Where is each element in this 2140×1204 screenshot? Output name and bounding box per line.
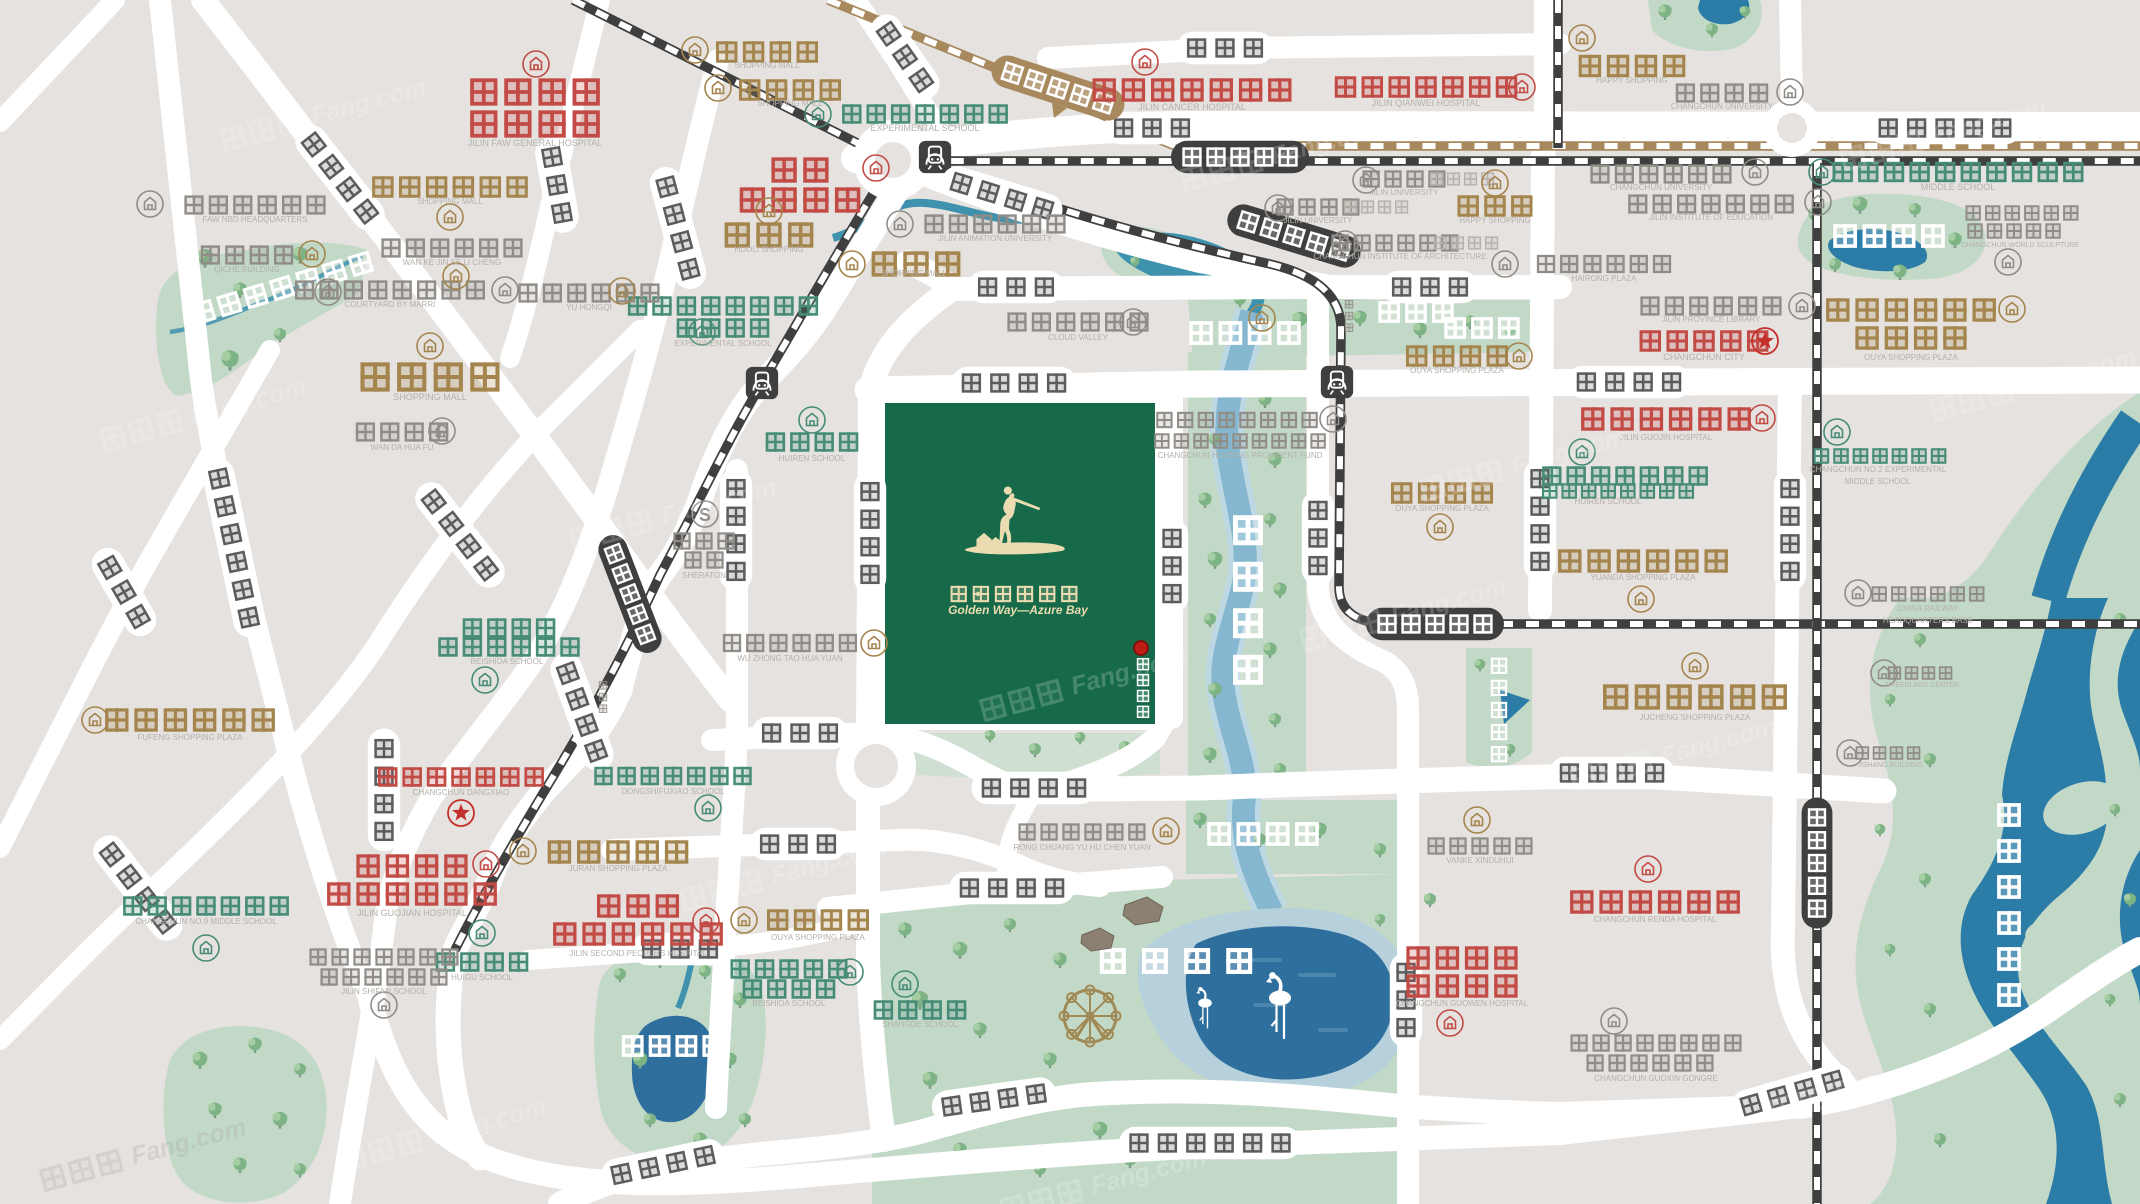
svg-text:SHOPPING MALL: SHOPPING MALL bbox=[417, 197, 483, 206]
svg-text:CHANGCHUN NO.9 MIDDLE SCHOOL: CHANGCHUN NO.9 MIDDLE SCHOOL bbox=[135, 917, 277, 926]
svg-text:JISHANG BUILDING: JISHANG BUILDING bbox=[1857, 762, 1922, 769]
svg-text:JILIN ANIMATION UNIVERSITY: JILIN ANIMATION UNIVERSITY bbox=[938, 234, 1053, 243]
svg-text:CHANGCHUN UNIVERSITY: CHANGCHUN UNIVERSITY bbox=[1671, 102, 1774, 111]
svg-text:JILIN UNIVERSITY: JILIN UNIVERSITY bbox=[1370, 188, 1440, 197]
svg-text:SHOPPING MALL: SHOPPING MALL bbox=[734, 61, 800, 70]
svg-text:JILIN SECOND PEOPLE'S HOSPITAL: JILIN SECOND PEOPLE'S HOSPITAL bbox=[569, 949, 707, 958]
svg-text:HEADQUARTERS BASE: HEADQUARTERS BASE bbox=[1883, 616, 1973, 625]
svg-text:OUYA SHOPPING PLAZA: OUYA SHOPPING PLAZA bbox=[1410, 366, 1504, 375]
svg-text:MIDDLE SCHOOL: MIDDLE SCHOOL bbox=[1845, 477, 1912, 486]
svg-text:Golden Way—Azure Bay: Golden Way—Azure Bay bbox=[948, 603, 1089, 617]
svg-text:VANKE XINDUHUI: VANKE XINDUHUI bbox=[1446, 856, 1513, 865]
svg-text:JILIN SHIFAN SCHOOL: JILIN SHIFAN SCHOOL bbox=[341, 987, 427, 996]
svg-text:CHANGCHUN RENDA HOSPITAL: CHANGCHUN RENDA HOSPITAL bbox=[1594, 915, 1718, 924]
svg-text:CHANGCHUN UNIVERSITY: CHANGCHUN UNIVERSITY bbox=[1610, 183, 1713, 192]
svg-text:JURAN SHOPPING PLAZA: JURAN SHOPPING PLAZA bbox=[569, 864, 668, 873]
svg-text:COURTYARD BY MARRI: COURTYARD BY MARRI bbox=[345, 300, 436, 309]
svg-text:JILIN INSTITUTE OF EDUCATION: JILIN INSTITUTE OF EDUCATION bbox=[1649, 213, 1774, 222]
svg-text:MIDDLE SCHOOL: MIDDLE SCHOOL bbox=[1921, 182, 1996, 192]
svg-text:OUYA SHOPPING PLAZA: OUYA SHOPPING PLAZA bbox=[1864, 353, 1958, 362]
svg-text:HUIREN SCHOOL: HUIREN SCHOOL bbox=[779, 454, 846, 463]
svg-text:CHINA RAILWAY: CHINA RAILWAY bbox=[1897, 604, 1959, 613]
svg-text:WAN KE JIN SE LI CHENG: WAN KE JIN SE LI CHENG bbox=[403, 258, 501, 267]
svg-text:HAPPY SHOPPING: HAPPY SHOPPING bbox=[1459, 216, 1530, 225]
svg-text:OUYA SHOPPING PLAZA: OUYA SHOPPING PLAZA bbox=[1395, 504, 1489, 513]
svg-text:CHANGCHUN GUOXIN GONGRE: CHANGCHUN GUOXIN GONGRE bbox=[1594, 1074, 1718, 1083]
svg-text:SHOPPING MALL: SHOPPING MALL bbox=[757, 99, 823, 108]
svg-text:JILIN CANCER HOSPITAL: JILIN CANCER HOSPITAL bbox=[1138, 102, 1246, 112]
svg-text:BEISHIDA SCHOOL: BEISHIDA SCHOOL bbox=[753, 999, 826, 1008]
svg-text:JUCHENG SHOPPING PLAZA: JUCHENG SHOPPING PLAZA bbox=[1640, 713, 1751, 722]
svg-text:SHANGDE SCHOOL: SHANGDE SCHOOL bbox=[882, 1020, 958, 1029]
svg-text:CHANGCHUN DANGXIAO: CHANGCHUN DANGXIAO bbox=[413, 788, 509, 797]
svg-text:CHANGCHUN CITY: CHANGCHUN CITY bbox=[1663, 352, 1745, 362]
svg-text:JILIN UNIVERSITY: JILIN UNIVERSITY bbox=[1284, 216, 1354, 225]
svg-text:EXPERIMENTAL SCHOOL: EXPERIMENTAL SCHOOL bbox=[870, 123, 979, 133]
svg-text:FAW NBD HEADQUARTERS: FAW NBD HEADQUARTERS bbox=[203, 215, 308, 224]
svg-text:DONGSHIFUXIAO SCHOOL: DONGSHIFUXIAO SCHOOL bbox=[621, 787, 725, 796]
svg-text:CHANGCHUN WORLD SCULPTURE: CHANGCHUN WORLD SCULPTURE bbox=[1961, 242, 2079, 249]
svg-text:HUIGU SCHOOL: HUIGU SCHOOL bbox=[451, 973, 513, 982]
svg-text:BEISHIDA SCHOOL: BEISHIDA SCHOOL bbox=[471, 657, 544, 666]
svg-text:CHANGCHUN HOUSING PROVIDENT FU: CHANGCHUN HOUSING PROVIDENT FUND bbox=[1158, 451, 1323, 460]
svg-text:SHERATON: SHERATON bbox=[682, 571, 726, 580]
svg-text:HUOLI SHOPPING: HUOLI SHOPPING bbox=[735, 245, 804, 254]
svg-text:JILIN GUOJIN HOSPITAL: JILIN GUOJIN HOSPITAL bbox=[1620, 433, 1713, 442]
svg-text:JILIN PROVINCE LIBRARY: JILIN PROVINCE LIBRARY bbox=[1662, 315, 1762, 324]
svg-text:HAPPY SHOPPING: HAPPY SHOPPING bbox=[1596, 76, 1667, 85]
svg-text:CLOUD VALLEY: CLOUD VALLEY bbox=[1048, 333, 1109, 342]
svg-text:CHANGCHUN GUOWEN HOSPITAL: CHANGCHUN GUOWEN HOSPITAL bbox=[1396, 999, 1529, 1008]
svg-text:FUFENG SHOPPING PLAZA: FUFENG SHOPPING PLAZA bbox=[138, 733, 244, 742]
svg-text:HAIRONG PLAZA: HAIRONG PLAZA bbox=[1572, 274, 1638, 283]
svg-text:GREENLAND CENTER: GREENLAND CENTER bbox=[1885, 682, 1959, 689]
svg-text:EXPERIMENTAL SCHOOL: EXPERIMENTAL SCHOOL bbox=[675, 339, 772, 348]
svg-text:CHANGCHUN INSTITUTE OF ARCHITE: CHANGCHUN INSTITUTE OF ARCHITECTURE bbox=[1313, 252, 1486, 261]
svg-text:CHANGCHUN NO.2 EXPERIMENTAL: CHANGCHUN NO.2 EXPERIMENTAL bbox=[1810, 465, 1947, 474]
svg-text:JILIN QIANWEI HOSPITAL: JILIN QIANWEI HOSPITAL bbox=[1372, 98, 1481, 108]
svg-text:RONG CHUANG YU HU CHEN YUAN: RONG CHUANG YU HU CHEN YUAN bbox=[1013, 843, 1150, 852]
svg-text:WAN DA HUA FU: WAN DA HUA FU bbox=[371, 443, 434, 452]
svg-text:SHOPPING MALL: SHOPPING MALL bbox=[881, 269, 947, 278]
svg-text:YUANDA SHOPPING PLAZA: YUANDA SHOPPING PLAZA bbox=[1591, 573, 1697, 582]
svg-text:QICHE BUILDING: QICHE BUILDING bbox=[214, 265, 279, 274]
svg-text:YU HONGQI: YU HONGQI bbox=[566, 303, 612, 312]
svg-text:HUIREN SCHOOL: HUIREN SCHOOL bbox=[1575, 497, 1642, 506]
svg-text:JILIN GUOJIAN HOSPITAL: JILIN GUOJIAN HOSPITAL bbox=[357, 908, 467, 918]
svg-text:JILIN FAW GENERAL HOSPITAL: JILIN FAW GENERAL HOSPITAL bbox=[468, 138, 602, 148]
svg-text:OUYA SHOPPING PLAZA: OUYA SHOPPING PLAZA bbox=[771, 933, 865, 942]
svg-text:SHOPPING MALL: SHOPPING MALL bbox=[393, 392, 467, 402]
svg-text:WU ZHONG TAO HUA YUAN: WU ZHONG TAO HUA YUAN bbox=[737, 654, 843, 663]
